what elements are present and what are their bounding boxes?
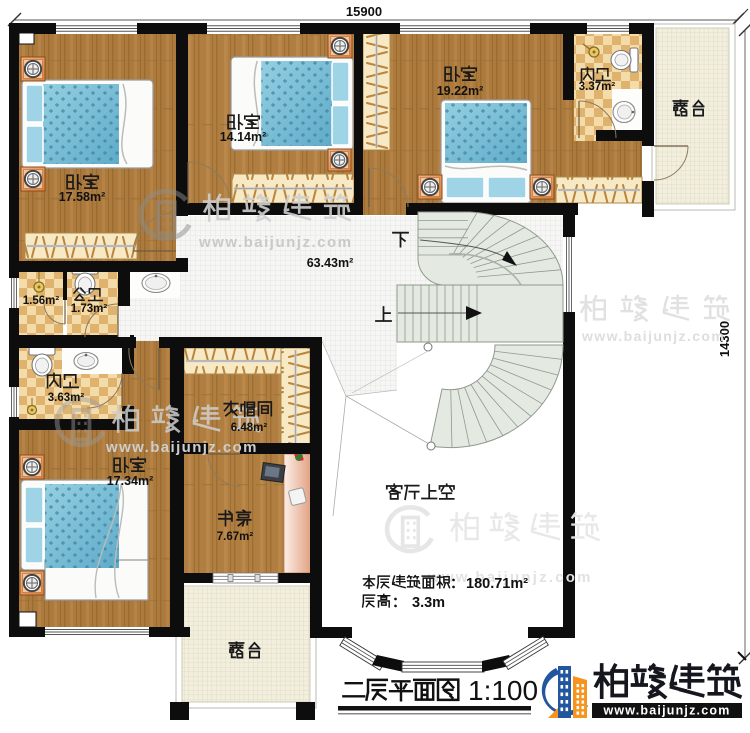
svg-text:3.3m: 3.3m [412,595,445,611]
svg-text:www.baijunjz.com: www.baijunjz.com [581,328,725,344]
svg-text:1.73m²: 1.73m² [71,303,108,315]
svg-text:15900: 15900 [346,4,382,19]
svg-text:14.14m²: 14.14m² [220,130,267,144]
svg-text:7.67m²: 7.67m² [217,531,254,543]
svg-text:3.37m²: 3.37m² [579,81,616,93]
svg-text:17.34m²: 17.34m² [107,474,154,488]
svg-text:17.58m²: 17.58m² [59,190,106,204]
svg-text:：: ： [392,594,406,610]
svg-text:3.63m²: 3.63m² [48,392,85,404]
svg-text:1:100: 1:100 [468,675,538,706]
svg-text:www.baijunjz.com: www.baijunjz.com [602,704,730,718]
svg-text:19.22m²: 19.22m² [437,84,484,98]
svg-text:：: ： [450,575,464,591]
svg-text:6.48m²: 6.48m² [231,422,268,434]
svg-text:1.56m²: 1.56m² [23,295,60,307]
svg-text:180.71m²: 180.71m² [466,576,528,592]
svg-text:www.baijunjz.com: www.baijunjz.com [198,234,352,251]
svg-text:63.43m²: 63.43m² [307,256,354,270]
svg-text:www.baijunjz.com: www.baijunjz.com [105,439,258,456]
